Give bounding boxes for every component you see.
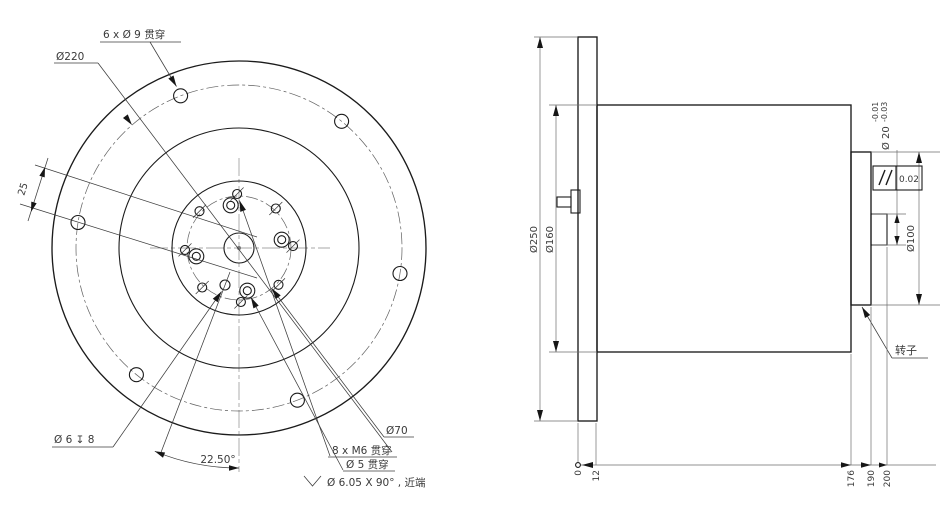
dim-25-label: 25 xyxy=(16,182,30,197)
ordinate-200: 200 xyxy=(883,470,893,487)
holes9-label: 6 x Ø 9 贯穿 xyxy=(103,28,165,41)
ordinate-0: 0 xyxy=(574,470,584,476)
parallelism-value: 0.02 xyxy=(899,175,919,185)
flange-plate xyxy=(578,37,597,421)
d250-label: Ø250 xyxy=(528,226,540,253)
d70-label: Ø70 xyxy=(386,425,408,437)
rotor-label: 转子 xyxy=(895,343,917,357)
ordinate-origin xyxy=(576,463,581,468)
drawing-sheet: 25 xyxy=(0,0,942,525)
d220-label: Ø220 xyxy=(56,51,84,63)
d160-label: Ø160 xyxy=(544,226,556,253)
angle-dimension: 22.50° xyxy=(154,449,239,471)
rotor-disc xyxy=(851,152,871,305)
ordinate-176: 176 xyxy=(847,470,857,487)
angle-label: 22.50° xyxy=(200,454,235,466)
csk-label: Ø 6.05 X 90° , 近端 xyxy=(327,476,426,489)
ordinate-12: 12 xyxy=(592,470,602,481)
d20-label: Ø 20 xyxy=(880,126,892,150)
d5-label: Ø 5 贯穿 xyxy=(346,458,389,471)
ordinate-190: 190 xyxy=(867,470,877,487)
dim-160: Ø160 xyxy=(544,105,597,352)
dim-20: Ø 20 -0.01 -0.03 xyxy=(871,102,906,245)
rotor-callout: 转子 xyxy=(859,305,928,358)
feature-control-frame: 0.02 xyxy=(873,166,922,190)
shaft-stub xyxy=(871,214,887,245)
side-view: Ø250 Ø160 Ø100 xyxy=(528,37,940,487)
d6-depth-label: Ø 6 ↧ 8 xyxy=(54,434,94,446)
countersink-symbol-icon xyxy=(304,476,321,486)
parallelism-symbol-icon xyxy=(879,170,892,185)
m6-label: 8 x M6 贯穿 xyxy=(332,444,392,457)
motor-body xyxy=(597,105,851,352)
d20-tol-lower: -0.03 xyxy=(880,102,889,122)
ordinate-dimensions: 0 12 176 190 200 xyxy=(574,247,936,487)
front-view: 25 xyxy=(16,28,426,489)
d100-label: Ø100 xyxy=(905,225,917,252)
leader-lines xyxy=(98,42,392,470)
connector-pin xyxy=(557,197,571,207)
d20-tol-upper: -0.01 xyxy=(871,102,880,122)
drawing-canvas: 25 xyxy=(0,0,942,525)
